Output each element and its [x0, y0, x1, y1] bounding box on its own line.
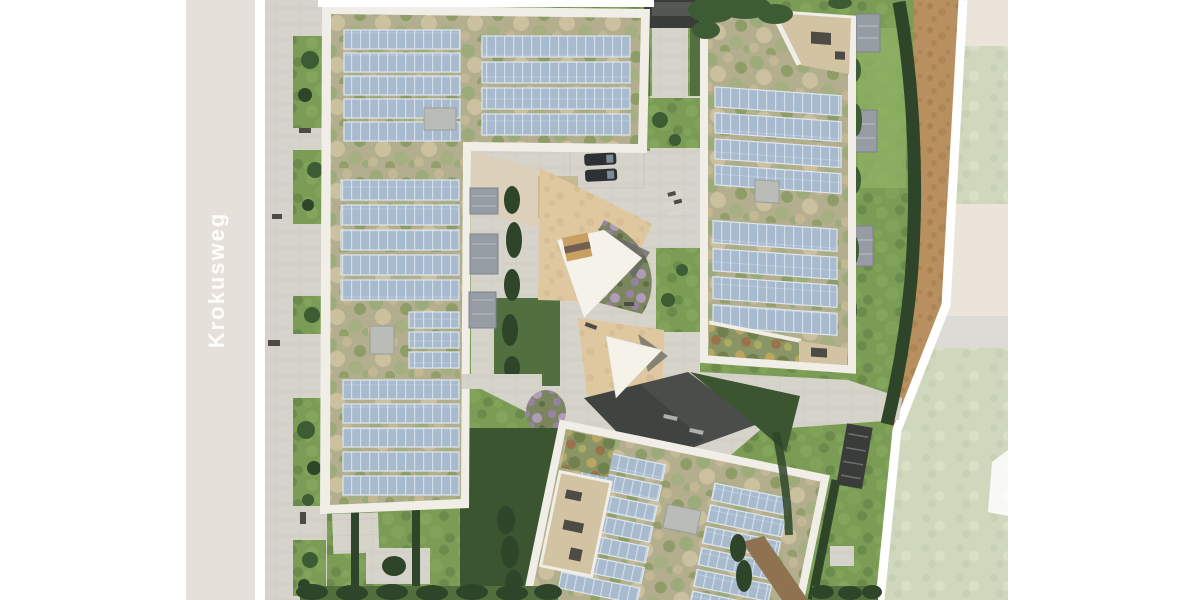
terrace-furniture [569, 547, 583, 561]
site-plan-svg: Krokusweg [0, 0, 1200, 600]
skylight [755, 180, 779, 204]
solar-panel-row [343, 404, 459, 423]
garden-path [462, 374, 542, 389]
solar-panel-row [341, 205, 459, 225]
solar-panel-row [341, 280, 459, 300]
solar-panel-row [482, 36, 630, 57]
solar-panel-row [344, 53, 460, 72]
solar-panel-row [343, 380, 459, 399]
solar-panel-row [341, 230, 459, 250]
shrub [661, 293, 675, 307]
solar-panel-row [482, 114, 630, 135]
solar-panel-row [482, 88, 630, 109]
solar-panel-row [343, 452, 459, 471]
building-b [700, 5, 856, 374]
hedge [730, 534, 746, 562]
shrub [652, 112, 668, 128]
garden-shed [856, 14, 880, 52]
pergola [469, 292, 496, 328]
hedge [736, 560, 752, 592]
street-name-label: Krokusweg [204, 212, 229, 349]
terrace-furniture [811, 348, 827, 358]
pergola [470, 234, 498, 274]
solar-panel-row [343, 428, 459, 447]
solar-panel-row [341, 180, 459, 200]
car-windshield [607, 170, 614, 178]
shrub [676, 264, 688, 276]
lawn [494, 298, 560, 386]
solar-panel-row [343, 476, 459, 495]
terrace-furniture [835, 51, 845, 60]
pergola [470, 188, 498, 214]
solar-panel-row [344, 30, 460, 49]
site-plan-image: Krokusweg [0, 0, 1200, 600]
page-margin [318, 0, 654, 7]
car-windshield [606, 154, 613, 162]
bench [624, 302, 634, 306]
shrub [669, 134, 681, 146]
skylight [424, 108, 456, 130]
solar-panel-row [341, 255, 459, 275]
skylight [370, 326, 394, 354]
lawn [656, 248, 702, 332]
north-path [652, 26, 688, 98]
hedge [382, 556, 406, 576]
terrace-furniture [811, 32, 831, 45]
solar-panel-row [482, 62, 630, 83]
solar-panel-row [409, 312, 459, 328]
garden-patio [830, 546, 854, 566]
solar-panel-row [409, 352, 459, 368]
solar-panel-row [344, 76, 460, 95]
solar-panel-row [409, 332, 459, 348]
street-edge-gap [255, 0, 264, 600]
